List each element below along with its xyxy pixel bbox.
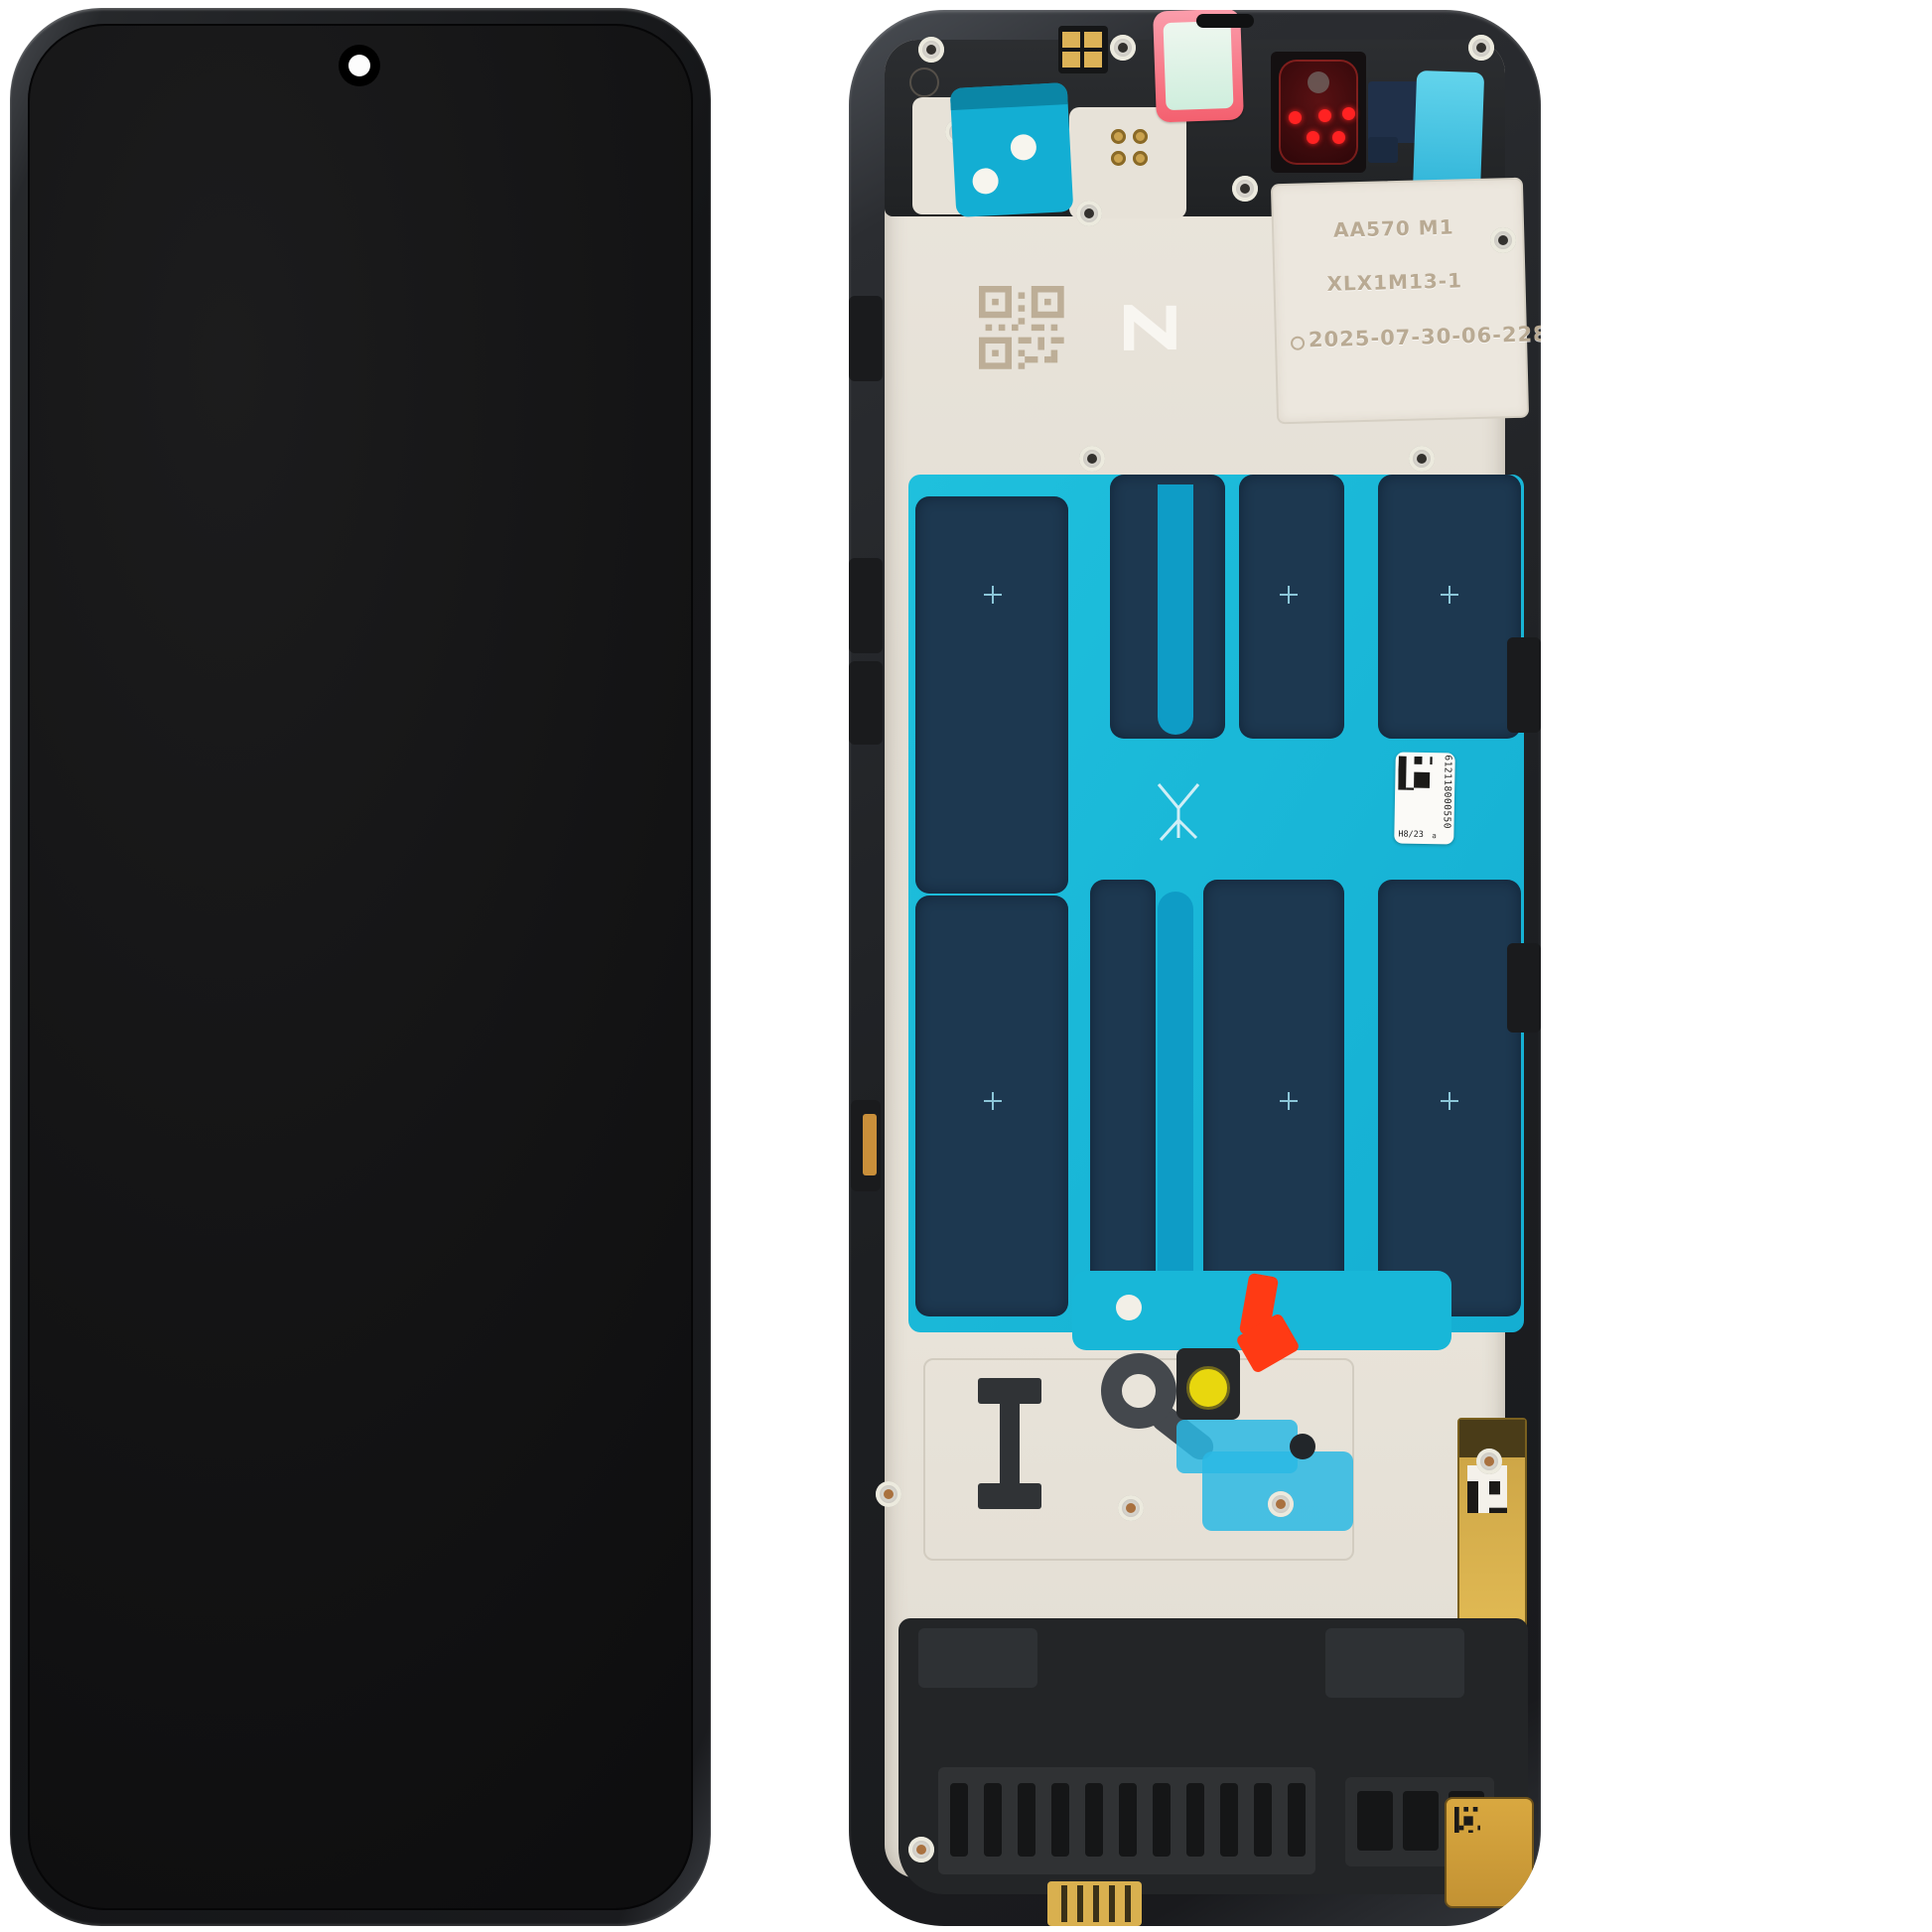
pull-ring-hole xyxy=(1122,1374,1156,1408)
gold-corner-flap xyxy=(1445,1797,1534,1908)
product-photo: AA570 M1 XLX1M13-1 2025-07-30-06-228 Z 2… xyxy=(0,0,1932,1932)
i-beam-bottom xyxy=(978,1483,1041,1509)
camera-window-decal xyxy=(1271,52,1366,173)
service-label: 612118000550 H8/23 a xyxy=(1394,752,1455,844)
camera-alignment-dot xyxy=(1318,109,1331,122)
adhesive-panel-navy xyxy=(1203,880,1344,1316)
bottom-bracket xyxy=(918,1628,1037,1688)
screw-hole-copper xyxy=(908,1837,934,1863)
gold-pad xyxy=(1062,32,1080,48)
tooth-slot xyxy=(1254,1783,1272,1857)
gold-pad xyxy=(1084,32,1102,48)
comb-slot xyxy=(1093,1885,1099,1922)
camera-flex-tail xyxy=(1368,137,1398,163)
label-datamatrix xyxy=(1398,757,1433,791)
adhesive-panel-navy xyxy=(1239,475,1344,739)
bottom-module xyxy=(898,1618,1528,1894)
tooth-slot xyxy=(1153,1783,1171,1857)
plus-tick xyxy=(984,586,1002,604)
comb-slot xyxy=(1125,1885,1131,1922)
teal-sticker-mesh xyxy=(950,82,1068,110)
camera-alignment-dot xyxy=(1307,131,1319,144)
tooth-slot xyxy=(1018,1783,1035,1857)
i-beam-top xyxy=(978,1378,1041,1404)
screw-hole-copper xyxy=(1476,1449,1502,1474)
comb-slot xyxy=(1077,1885,1083,1922)
front-camera-ring xyxy=(339,45,380,86)
side-flex-gold xyxy=(863,1114,877,1175)
i-beam-stem xyxy=(1000,1402,1020,1485)
etched-plate: AA570 M1 XLX1M13-1 2025-07-30-06-228 xyxy=(1271,178,1529,425)
adhesive-panel-navy xyxy=(1090,880,1156,1316)
camera-alignment-dot xyxy=(1342,107,1355,120)
screw-hole xyxy=(1076,201,1102,226)
screw-hole xyxy=(1079,446,1105,472)
tooth-slot xyxy=(1085,1783,1103,1857)
side-rail-slot xyxy=(1507,943,1541,1033)
side-rail-slot xyxy=(849,661,883,745)
camera-alignment-dot xyxy=(1289,111,1302,124)
mint-sticker-core xyxy=(1163,21,1233,110)
bottom-slot xyxy=(1403,1791,1439,1851)
gold-contact-dot xyxy=(1133,151,1148,166)
gold-contact-pads xyxy=(1058,26,1108,73)
frame-unit: AA570 M1 XLX1M13-1 2025-07-30-06-228 Z 2… xyxy=(849,10,1541,1926)
side-rail-slot xyxy=(849,558,883,653)
gold-contact-dot xyxy=(1111,151,1126,166)
label-batch: H8/23 xyxy=(1398,830,1424,840)
adhesive-spine xyxy=(1158,892,1193,1316)
label-rev: a xyxy=(1432,831,1437,840)
display-screen xyxy=(28,24,693,1910)
gold-contact-dot xyxy=(1133,129,1148,144)
mic-seal-yellow xyxy=(1186,1366,1230,1410)
side-rail-slot xyxy=(849,296,883,381)
z-mark: Z xyxy=(1105,288,1192,367)
comb-slot xyxy=(1109,1885,1115,1922)
tooth-slot xyxy=(1220,1783,1238,1857)
flap-datamatrix xyxy=(1454,1807,1480,1833)
adhesive-panel-navy xyxy=(915,496,1068,894)
tooth-slot xyxy=(1186,1783,1204,1857)
screw-hole xyxy=(1490,227,1516,253)
gold-pad xyxy=(1062,52,1080,68)
etched-serial-line: XLX1M13-1 xyxy=(1326,268,1462,296)
plus-tick xyxy=(1280,586,1298,604)
camera-alignment-dot xyxy=(1332,131,1345,144)
top-rail-slot xyxy=(1196,14,1254,28)
pull-ring xyxy=(1101,1353,1176,1429)
screw-hole xyxy=(1110,35,1136,61)
i-beam-emboss xyxy=(978,1378,1041,1509)
bottom-bracket xyxy=(1325,1628,1464,1698)
etched-dot xyxy=(1291,337,1305,350)
adhesive-panel-navy xyxy=(1378,475,1521,739)
etched-serial-line: AA570 M1 xyxy=(1333,215,1454,242)
teal-sticker xyxy=(950,82,1074,217)
etched-stamp-circle xyxy=(909,68,939,97)
sticker-hole xyxy=(1010,134,1036,161)
front-camera-hole-icon xyxy=(348,55,370,76)
camera-lens-circle xyxy=(1308,71,1329,93)
screw-hole-copper xyxy=(1118,1495,1144,1521)
flex-hole xyxy=(1290,1434,1315,1459)
plus-tick xyxy=(1280,1092,1298,1110)
plus-tick xyxy=(984,1092,1002,1110)
etched-date-code: 2025-07-30-06-228 xyxy=(1309,322,1541,351)
screw-hole xyxy=(1409,446,1435,472)
adhesive-hole xyxy=(1116,1295,1142,1320)
etched-qr-code xyxy=(979,286,1064,369)
tooth-slot xyxy=(950,1783,968,1857)
comb-slot xyxy=(1061,1885,1067,1922)
bottom-slot xyxy=(1357,1791,1393,1851)
tooth-slot xyxy=(1119,1783,1137,1857)
screw-hole-copper xyxy=(1268,1491,1294,1517)
gold-contact-dot xyxy=(1111,129,1126,144)
label-number: 612118000550 xyxy=(1441,755,1452,840)
screw-hole xyxy=(918,37,944,63)
side-rail-slot xyxy=(1507,637,1541,733)
camera-red-window xyxy=(1279,60,1358,165)
tooth-slot xyxy=(984,1783,1002,1857)
screw-hole xyxy=(1232,176,1258,202)
adhesive-spine xyxy=(1158,484,1193,735)
bottom-gold-comb xyxy=(1047,1881,1142,1926)
speaker-teeth xyxy=(938,1767,1315,1874)
gold-pad xyxy=(1084,52,1102,68)
plus-tick xyxy=(1441,586,1458,604)
screw-hole xyxy=(1468,35,1494,61)
plus-tick xyxy=(1441,1092,1458,1110)
sticker-hole xyxy=(972,168,999,195)
screw-hole-copper xyxy=(876,1481,901,1507)
alignment-x-mark xyxy=(1149,774,1208,846)
tooth-slot xyxy=(1288,1783,1306,1857)
front-display-unit xyxy=(10,8,711,1926)
tooth-slot xyxy=(1051,1783,1069,1857)
